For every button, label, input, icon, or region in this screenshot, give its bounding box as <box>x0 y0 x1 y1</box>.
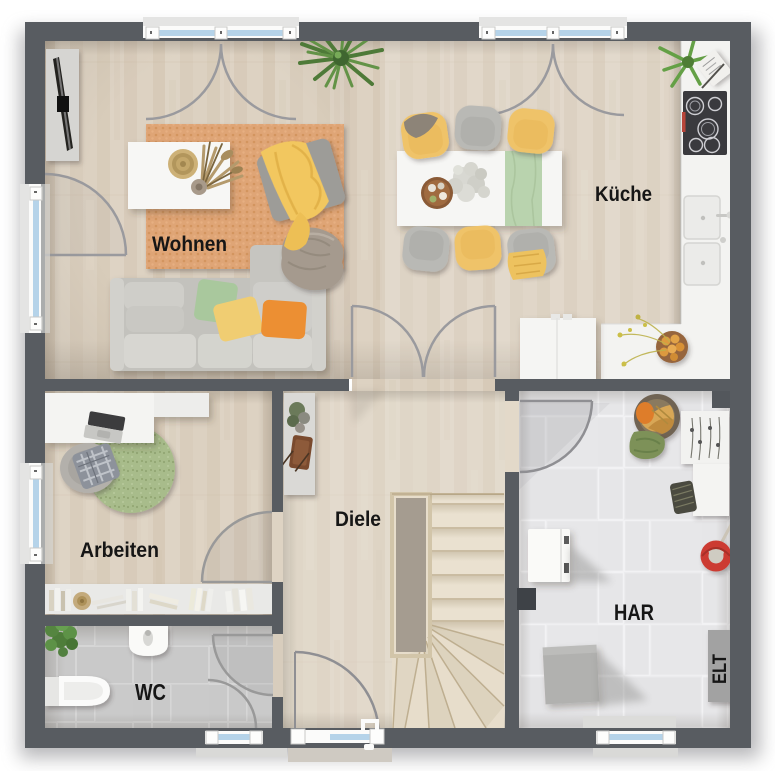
svg-text:Arbeiten: Arbeiten <box>80 539 159 562</box>
svg-text:WC: WC <box>135 679 166 705</box>
svg-text:HAR: HAR <box>614 600 654 625</box>
svg-text:Diele: Diele <box>335 508 381 531</box>
svg-text:Küche: Küche <box>595 183 652 206</box>
svg-text:ELT: ELT <box>710 654 731 684</box>
svg-text:Wohnen: Wohnen <box>152 233 227 256</box>
